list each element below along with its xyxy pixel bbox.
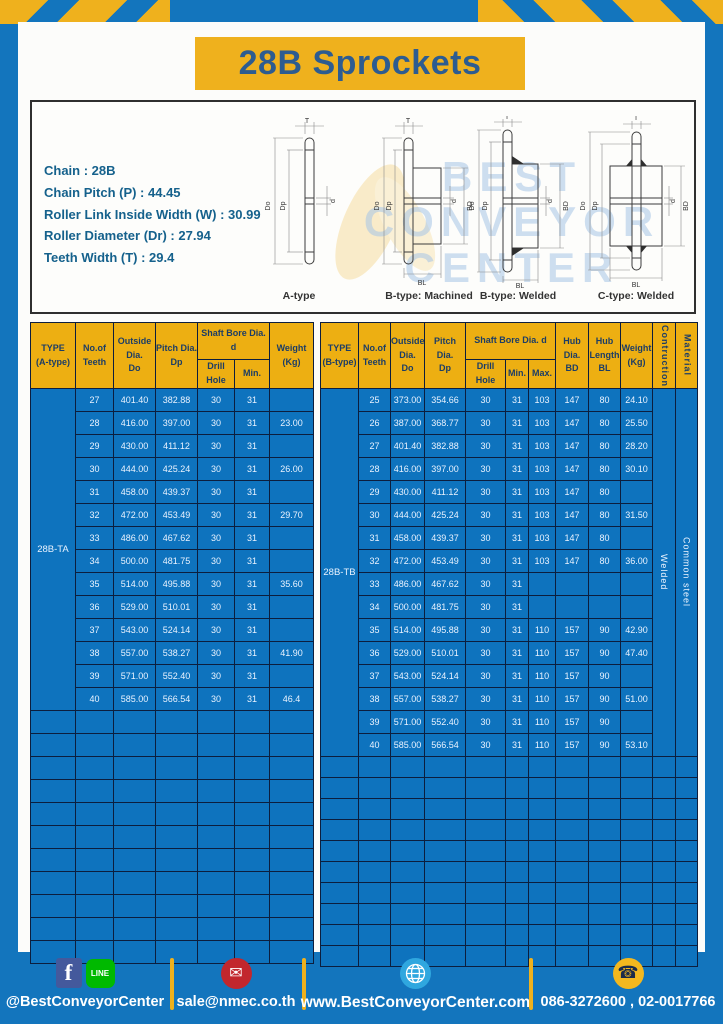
table-cell: 157 (556, 688, 589, 711)
table-cell (270, 757, 314, 780)
phone-numbers: 086-3272600 , 02-0017766 (541, 994, 716, 1010)
table-cell: 31 (506, 435, 529, 458)
table-cell (466, 904, 506, 925)
table-cell: 538.27 (156, 642, 198, 665)
table-cell (270, 918, 314, 941)
table-cell: 472.00 (391, 550, 425, 573)
col-header-pitch-dia: Pitch Dia. Dp (425, 323, 466, 389)
table-cell (653, 883, 676, 904)
table-cell: 30 (466, 435, 506, 458)
table-cell: 373.00 (391, 389, 425, 412)
page-title: 28B Sprockets (239, 44, 482, 83)
table-cell: 42.90 (621, 619, 653, 642)
table-cell (391, 841, 425, 862)
table-cell (529, 883, 556, 904)
table-cell: 571.00 (114, 665, 156, 688)
table-cell: 31 (359, 527, 391, 550)
table-cell: 30 (198, 458, 235, 481)
spec-line: Chain Pitch (P) : 44.45 (44, 182, 261, 204)
table-cell: 30 (198, 412, 235, 435)
table-cell: 34 (359, 596, 391, 619)
table-cell: 30 (198, 619, 235, 642)
table-cell: 481.75 (156, 550, 198, 573)
empty-table-row (321, 778, 698, 799)
table-cell: 411.12 (156, 435, 198, 458)
type-label-cell: 28B-TA (31, 389, 76, 711)
spec-line: Teeth Width (T) : 29.4 (44, 247, 261, 269)
table-cell (676, 883, 698, 904)
table-cell (621, 862, 653, 883)
table-row: 34500.00481.753031 (321, 596, 698, 619)
table-row: 31458.00439.37303110314780 (321, 527, 698, 550)
col-header-weight: Weight (Kg) (270, 323, 314, 389)
table-row: 30444.00425.2430311031478031.50 (321, 504, 698, 527)
table-cell: 31 (235, 435, 270, 458)
table-cell: 157 (556, 619, 589, 642)
table-cell: 500.00 (114, 550, 156, 573)
table-cell (270, 734, 314, 757)
table-cell: 30 (198, 504, 235, 527)
svg-text:Do: Do (469, 201, 476, 210)
table-cell (114, 757, 156, 780)
table-cell (114, 872, 156, 895)
table-cell (359, 820, 391, 841)
table-cell: 26.00 (270, 458, 314, 481)
svg-text:Dp: Dp (592, 201, 599, 210)
table-cell (270, 711, 314, 734)
table-cell: 538.27 (425, 688, 466, 711)
table-cell (114, 918, 156, 941)
table-cell (31, 734, 76, 757)
title-banner: 28B Sprockets (195, 37, 525, 90)
table-cell (235, 711, 270, 734)
table-cell (31, 780, 76, 803)
col-header-drill-hole: Drill Hole (198, 360, 235, 389)
table-cell (425, 757, 466, 778)
table-cell: 30 (466, 711, 506, 734)
table-cell: 23.00 (270, 412, 314, 435)
table-cell (506, 862, 529, 883)
table-cell: 30 (466, 481, 506, 504)
table-cell: 103 (529, 481, 556, 504)
table-cell: 80 (589, 550, 621, 573)
table-cell (391, 862, 425, 883)
table-cell: 110 (529, 642, 556, 665)
table-cell (321, 820, 359, 841)
table-cell (621, 925, 653, 946)
table-cell: 30 (466, 573, 506, 596)
empty-table-row (31, 757, 314, 780)
table-cell: 37 (359, 665, 391, 688)
table-cell (391, 925, 425, 946)
table-cell (31, 872, 76, 895)
table-cell: 80 (589, 412, 621, 435)
table-cell (466, 778, 506, 799)
table-cell: 33 (359, 573, 391, 596)
svg-text:BL: BL (516, 283, 525, 288)
table-cell: 30 (198, 550, 235, 573)
table-cell: 30 (466, 734, 506, 757)
table-cell: 453.49 (425, 550, 466, 573)
empty-table-row (321, 883, 698, 904)
empty-table-row (31, 918, 314, 941)
table-cell (270, 596, 314, 619)
table-cell (529, 925, 556, 946)
table-cell: 103 (529, 435, 556, 458)
table-cell: 147 (556, 458, 589, 481)
table-cell: 26 (359, 412, 391, 435)
table-cell (589, 841, 621, 862)
table-cell (359, 862, 391, 883)
table-cell (556, 596, 589, 619)
diagram-box: BEST CONVEYOR CENTER Chain : 28B Chain P… (30, 100, 696, 314)
table-cell (198, 757, 235, 780)
table-cell (391, 757, 425, 778)
table-cell: 566.54 (425, 734, 466, 757)
table-cell: 411.12 (425, 481, 466, 504)
table-cell: 31 (506, 665, 529, 688)
chain-specs: Chain : 28B Chain Pitch (P) : 44.45 Roll… (44, 160, 261, 269)
table-cell: 486.00 (391, 573, 425, 596)
empty-table-row (321, 757, 698, 778)
table-cell: 31 (506, 481, 529, 504)
table-cell (506, 925, 529, 946)
table-cell (621, 596, 653, 619)
table-cell (589, 573, 621, 596)
table-cell: 35 (359, 619, 391, 642)
table-cell: 32 (76, 504, 114, 527)
social-handle: @BestConveyorCenter (6, 994, 164, 1010)
table-cell (321, 862, 359, 883)
table-cell (198, 826, 235, 849)
table-row: 36529.00510.0130311101579047.40 (321, 642, 698, 665)
table-cell: 53.10 (621, 734, 653, 757)
table-cell (676, 841, 698, 862)
table-cell: 37 (76, 619, 114, 642)
table-cell (621, 665, 653, 688)
table-cell: 38 (76, 642, 114, 665)
empty-table-row (31, 872, 314, 895)
table-cell: 458.00 (391, 527, 425, 550)
table-cell: 31 (235, 412, 270, 435)
table-cell (270, 389, 314, 412)
table-cell: 31 (235, 550, 270, 573)
table-cell (156, 849, 198, 872)
col-header-hub-dia: Hub Dia. BD (556, 323, 589, 389)
table-cell (653, 799, 676, 820)
table-cell (31, 826, 76, 849)
table-cell (270, 780, 314, 803)
table-cell: 30 (466, 504, 506, 527)
table-cell (653, 757, 676, 778)
table-cell: 31 (235, 619, 270, 642)
table-cell (556, 820, 589, 841)
table-cell: 557.00 (391, 688, 425, 711)
table-cell: 80 (589, 435, 621, 458)
table-row: 28416.00397.0030311031478030.10 (321, 458, 698, 481)
hazard-stripes-right (478, 0, 723, 24)
table-cell (676, 862, 698, 883)
table-cell: 147 (556, 550, 589, 573)
table-cell (321, 904, 359, 925)
table-cell (676, 757, 698, 778)
table-cell: 25.50 (621, 412, 653, 435)
website-url: www.BestConveyorCenter.com (301, 994, 530, 1012)
table-cell: 147 (556, 504, 589, 527)
table-cell: 24.10 (621, 389, 653, 412)
table-cell: 47.40 (621, 642, 653, 665)
table-cell (529, 757, 556, 778)
table-cell (556, 841, 589, 862)
table-cell: 90 (589, 734, 621, 757)
table-cell (198, 780, 235, 803)
table-cell (391, 904, 425, 925)
table-cell: 110 (529, 734, 556, 757)
table-cell (359, 883, 391, 904)
table-cell (425, 883, 466, 904)
table-cell: 157 (556, 642, 589, 665)
svg-text:d: d (670, 199, 677, 203)
table-cell: 30 (198, 573, 235, 596)
table-cell (270, 895, 314, 918)
table-cell (359, 757, 391, 778)
material-value-cell: Common steel (676, 389, 698, 757)
col-header-min: Min. (235, 360, 270, 389)
a-type-caption: A-type (283, 290, 316, 302)
table-cell (621, 883, 653, 904)
table-cell: 38 (359, 688, 391, 711)
table-cell (556, 862, 589, 883)
table-cell (556, 573, 589, 596)
table-row: 33486.00467.623031 (321, 573, 698, 596)
table-cell (676, 820, 698, 841)
b-type-table-body: 28B-TB25373.00354.6630311031478024.10Wel… (321, 389, 698, 967)
table-cell: 30 (198, 665, 235, 688)
table-cell (589, 778, 621, 799)
col-header-weight: Weight (Kg) (621, 323, 653, 389)
table-cell (321, 925, 359, 946)
table-cell: 524.14 (425, 665, 466, 688)
table-cell (529, 820, 556, 841)
svg-text:d: d (451, 199, 458, 203)
table-cell (76, 734, 114, 757)
svg-text:T: T (634, 116, 639, 122)
table-cell (76, 780, 114, 803)
table-cell (506, 883, 529, 904)
a-type-table-body: 28B-TA27401.40382.88303128416.00397.0030… (31, 389, 314, 964)
table-cell: 439.37 (156, 481, 198, 504)
table-cell (270, 527, 314, 550)
table-cell: 31 (506, 504, 529, 527)
table-cell: 524.14 (156, 619, 198, 642)
table-cell (466, 862, 506, 883)
table-cell: 31 (235, 573, 270, 596)
line-icon: LINE (86, 959, 115, 988)
empty-table-row (321, 904, 698, 925)
table-cell: 557.00 (114, 642, 156, 665)
table-row: 38557.00538.2730311101579051.00 (321, 688, 698, 711)
table-cell (76, 757, 114, 780)
table-cell (621, 820, 653, 841)
table-row: 40585.00566.5430311101579053.10 (321, 734, 698, 757)
table-cell (235, 826, 270, 849)
table-row: 27401.40382.8830311031478028.20 (321, 435, 698, 458)
table-cell: 481.75 (425, 596, 466, 619)
svg-text:T: T (505, 116, 510, 121)
table-cell: 36 (76, 596, 114, 619)
table-cell: 157 (556, 734, 589, 757)
svg-text:Dp: Dp (482, 201, 489, 210)
table-cell: 31 (235, 596, 270, 619)
table-cell (114, 849, 156, 872)
table-cell: 34 (76, 550, 114, 573)
col-header-material: Material (676, 323, 698, 389)
table-cell: 36.00 (621, 550, 653, 573)
empty-table-row (31, 734, 314, 757)
table-cell: 31 (235, 458, 270, 481)
table-cell: 80 (589, 458, 621, 481)
table-cell (556, 883, 589, 904)
col-header-type: TYPE (B-type) (321, 323, 359, 389)
table-cell (270, 619, 314, 642)
table-cell: 30 (198, 596, 235, 619)
table-cell: 30 (198, 481, 235, 504)
table-cell (31, 895, 76, 918)
table-cell: 458.00 (114, 481, 156, 504)
table-cell: 39 (359, 711, 391, 734)
table-cell (556, 925, 589, 946)
table-cell (359, 904, 391, 925)
table-cell: 430.00 (391, 481, 425, 504)
table-cell: 110 (529, 711, 556, 734)
col-header-teeth: No.of Teeth (76, 323, 114, 389)
table-cell (270, 481, 314, 504)
table-cell: 103 (529, 412, 556, 435)
table-cell (589, 925, 621, 946)
table-cell: 472.00 (114, 504, 156, 527)
table-row: 37543.00524.14303111015790 (321, 665, 698, 688)
b-type-welded-caption: B-type: Welded (480, 290, 556, 302)
table-cell (529, 573, 556, 596)
col-header-teeth: No.of Teeth (359, 323, 391, 389)
empty-table-row (31, 895, 314, 918)
table-cell (391, 883, 425, 904)
construction-value-cell: Welded (653, 389, 676, 757)
table-cell: 439.37 (425, 527, 466, 550)
table-cell: 31 (235, 665, 270, 688)
col-header-outside-dia: Outside Dia. Do (391, 323, 425, 389)
table-cell: 31 (235, 527, 270, 550)
footer-phone-section: ☎ 086-3272600 , 02-0017766 (533, 957, 723, 1010)
facebook-icon: f (56, 958, 82, 988)
table-cell (653, 925, 676, 946)
svg-text:T: T (305, 118, 310, 125)
table-cell: 31 (506, 688, 529, 711)
table-cell: 543.00 (391, 665, 425, 688)
a-type-table: TYPE (A-type) No.of Teeth Outside Dia. D… (30, 322, 313, 964)
empty-table-row (321, 820, 698, 841)
table-cell: 28 (76, 412, 114, 435)
table-cell: 147 (556, 481, 589, 504)
table-cell: 31 (506, 596, 529, 619)
table-row: 29430.00411.12303110314780 (321, 481, 698, 504)
type-label-cell: 28B-TB (321, 389, 359, 757)
table-cell: 90 (589, 665, 621, 688)
table-cell (621, 841, 653, 862)
table-cell: 29.70 (270, 504, 314, 527)
table-cell (270, 435, 314, 458)
empty-table-row (31, 711, 314, 734)
table-cell (589, 596, 621, 619)
table-cell: 32 (359, 550, 391, 573)
table-cell (114, 711, 156, 734)
table-cell: 552.40 (425, 711, 466, 734)
table-cell (31, 711, 76, 734)
table-cell: 31 (506, 458, 529, 481)
table-cell: 529.00 (391, 642, 425, 665)
table-cell: 416.00 (114, 412, 156, 435)
table-cell (425, 925, 466, 946)
footer-social-section: f LINE @BestConveyorCenter (0, 957, 170, 1010)
table-cell: 30 (198, 642, 235, 665)
table-cell (321, 841, 359, 862)
col-header-hub-length: Hub Length BL (589, 323, 621, 389)
svg-text:d: d (547, 199, 554, 203)
phone-icon: ☎ (613, 958, 644, 989)
table-cell (270, 550, 314, 573)
b-type-machined-caption: B-type: Machined (385, 290, 473, 302)
table-cell: 90 (589, 711, 621, 734)
table-cell (425, 820, 466, 841)
svg-text:Dp: Dp (386, 201, 393, 210)
table-cell: 103 (529, 504, 556, 527)
empty-table-row (31, 803, 314, 826)
empty-table-row (31, 849, 314, 872)
table-cell (76, 918, 114, 941)
table-cell (235, 895, 270, 918)
table-row: 28B-TB25373.00354.6630311031478024.10Wel… (321, 389, 698, 412)
table-cell: 30 (466, 619, 506, 642)
table-cell: 31.50 (621, 504, 653, 527)
table-cell (621, 711, 653, 734)
table-cell (114, 895, 156, 918)
table-cell: 30 (466, 665, 506, 688)
table-cell: 354.66 (425, 389, 466, 412)
table-cell (529, 778, 556, 799)
table-cell (359, 925, 391, 946)
col-header-shaft-bore: Shaft Bore Dia. d (466, 323, 556, 360)
table-cell (621, 481, 653, 504)
table-cell: 31 (506, 642, 529, 665)
table-cell: 566.54 (156, 688, 198, 711)
table-cell: 416.00 (391, 458, 425, 481)
table-cell (359, 778, 391, 799)
table-cell (235, 918, 270, 941)
table-cell: 30 (466, 527, 506, 550)
table-cell (466, 925, 506, 946)
table-cell: 382.88 (156, 389, 198, 412)
table-cell (114, 826, 156, 849)
col-header-shaft-bore: Shaft Bore Dia. d (198, 323, 270, 360)
table-cell: 30 (466, 596, 506, 619)
col-header-max: Max. (529, 360, 556, 389)
table-cell: 382.88 (425, 435, 466, 458)
table-cell (270, 803, 314, 826)
table-cell (198, 803, 235, 826)
table-cell (529, 904, 556, 925)
table-cell: 110 (529, 688, 556, 711)
table-cell: 147 (556, 412, 589, 435)
